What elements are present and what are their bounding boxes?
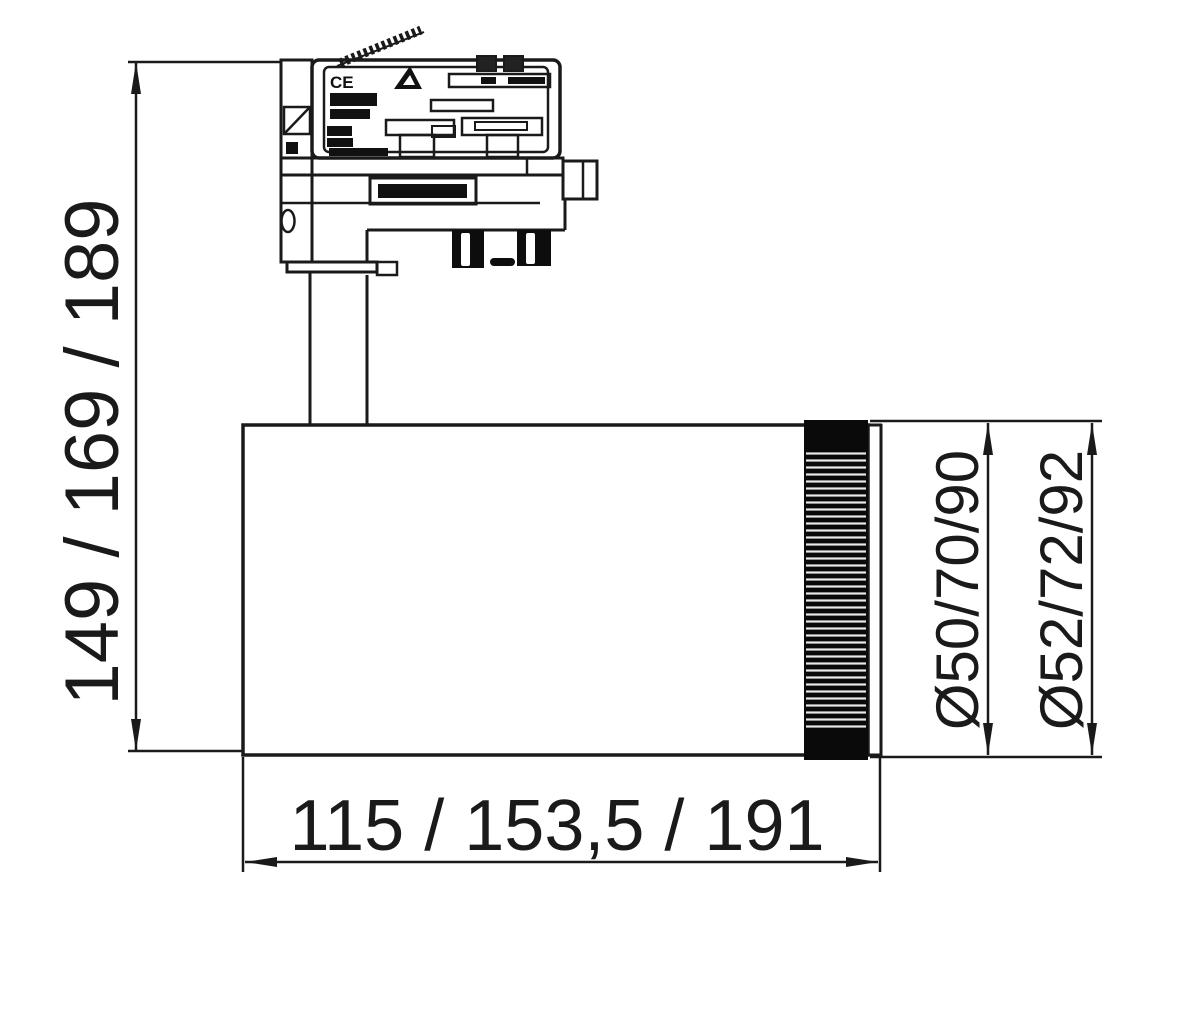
diameter-inner-label: Ø50/70/90 (924, 450, 991, 730)
lamp-body (243, 420, 882, 760)
knurled-ring (804, 420, 868, 760)
ce-mark: CE (330, 73, 354, 92)
height-dim-label: 149 / 169 / 189 (50, 198, 135, 705)
dimension-diameter-outer: Ø52/72/92 (1028, 423, 1097, 755)
small-marking-block (286, 142, 298, 154)
spotlight-dimension-drawing: CE (0, 0, 1200, 1032)
length-dim-label: 115 / 153,5 / 191 (289, 786, 824, 866)
dimension-drawing-canvas: CE (0, 0, 1200, 1032)
diameter-outer-label: Ø52/72/92 (1028, 450, 1095, 730)
dimension-diameter-inner: Ø50/70/90 (924, 423, 993, 755)
lamp-body-outline (243, 425, 868, 755)
